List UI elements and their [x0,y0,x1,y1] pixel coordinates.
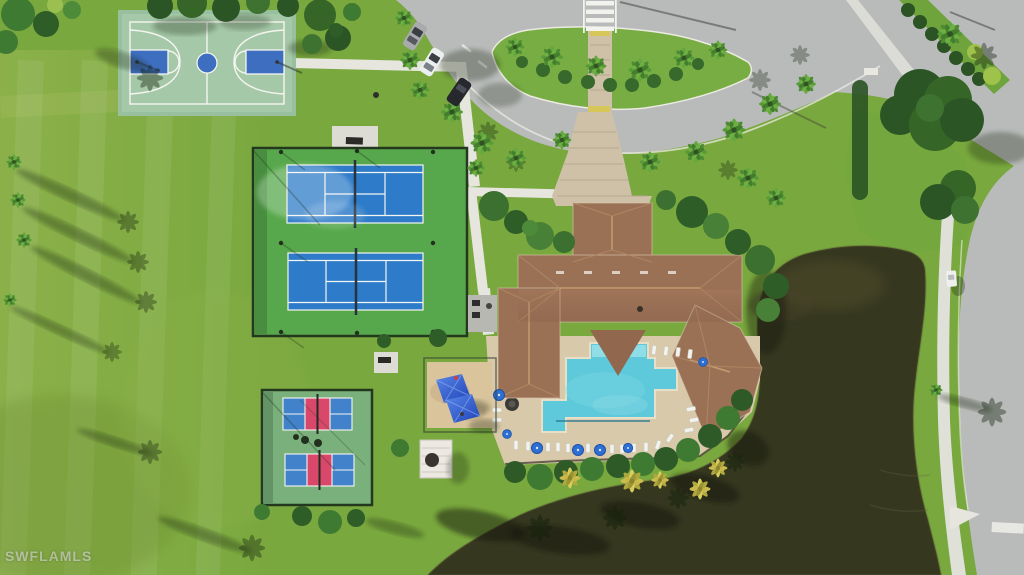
pool-umbrella [573,445,584,456]
tactile-pad-walkway [588,106,610,112]
tree-shadow-on-drive [478,83,522,107]
pool-umbrella [595,445,606,456]
grill [472,300,480,306]
grill-table [486,303,492,309]
pool-umbrella [503,430,512,439]
tennis-courts-group [253,148,467,348]
aerial-photo [0,0,1024,575]
roof-shading [518,290,742,322]
tree-shadow-on-drive [440,49,500,81]
pergola-seating [425,453,439,467]
roadside-bench [864,68,878,75]
trash-can [373,92,379,98]
pickleball-courts-group [262,390,372,505]
pool-umbrella [532,443,543,454]
basketball-center-circle [197,53,217,73]
palm-shadow-on-water [603,506,627,530]
palm-shadow-on-water [725,452,745,472]
court-light-wash [305,201,365,229]
pickleball-court-south [285,450,354,490]
stop-bar [991,522,1023,534]
palm-shadow-on-water [527,515,553,541]
watermark: SWFLAMLS [5,548,92,564]
pickleball-bench [378,357,391,363]
tennis-bench [346,137,363,145]
median-bush [983,67,1001,85]
pickleball-court-north [283,394,352,434]
palm-shadow-on-water [667,487,689,509]
canopy-shadow [469,419,499,433]
pool-umbrella [623,443,632,452]
pergola-shadow [447,452,469,484]
aerial-photo-stage: SWFLAMLS [0,0,1024,575]
roadside-hedge [852,80,868,200]
fire-pit-center [509,401,516,408]
pool-highlight [592,395,648,415]
roof-vent-dark [637,306,643,312]
pool-umbrella [699,358,708,367]
fence-shadow-west [264,392,273,503]
pool-umbrella [494,390,505,401]
grill [472,312,480,318]
play-equipment [454,376,458,380]
play-equipment [460,412,464,416]
